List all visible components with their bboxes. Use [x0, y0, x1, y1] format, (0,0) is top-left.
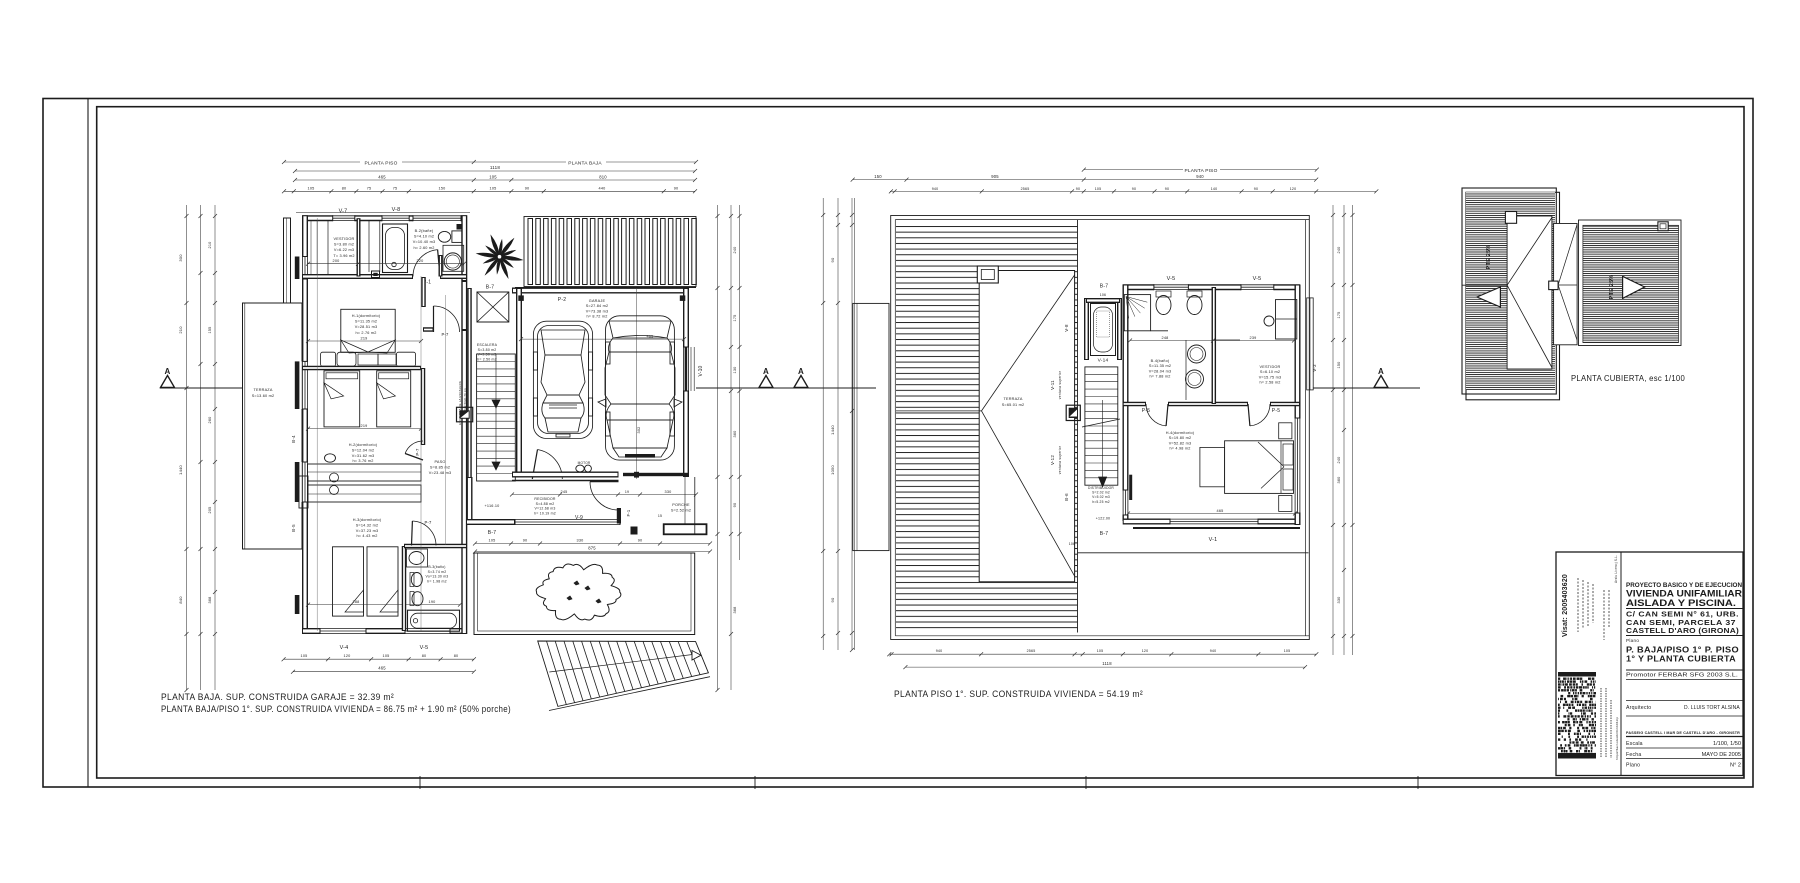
svg-text:V-3: V-3 [1312, 364, 1317, 372]
svg-text:140: 140 [1211, 187, 1218, 191]
svg-text:ventana superior: ventana superior [1058, 445, 1062, 474]
svg-text:V-12: V-12 [1050, 455, 1055, 465]
svg-text:VESTIDOR: VESTIDOR [333, 237, 354, 241]
svg-text:105: 105 [490, 187, 497, 191]
svg-text:810: 810 [599, 174, 607, 179]
svg-text:S=4.10 m2: S=4.10 m2 [414, 235, 434, 239]
svg-text:V=5.02 m3: V=5.02 m3 [1092, 495, 1110, 499]
svg-text:288: 288 [353, 600, 360, 604]
svg-text:VESTIDOR: VESTIDOR [1259, 365, 1280, 369]
svg-text:Promotor FERBAR SFG 2003 S.L.: Promotor FERBAR SFG 2003 S.L. [1626, 673, 1738, 679]
svg-text:Vo=13.30 m3: Vo=13.30 m3 [426, 575, 449, 579]
svg-text:F-1: F-1 [626, 509, 631, 516]
svg-text:h= 10.19 m2: h= 10.19 m2 [534, 511, 556, 515]
svg-text:h= 8.72 m2: h= 8.72 m2 [586, 315, 607, 319]
svg-text:465: 465 [378, 174, 386, 179]
svg-text:PLANTA BAJA: PLANTA BAJA [568, 161, 602, 167]
svg-text:V-5: V-5 [1253, 276, 1262, 282]
svg-text:B-4(baño): B-4(baño) [1151, 359, 1170, 363]
svg-text:105: 105 [1284, 649, 1291, 653]
svg-text:260: 260 [208, 417, 212, 424]
svg-text:90: 90 [1076, 187, 1080, 191]
svg-text:+122.00: +122.00 [1096, 517, 1111, 521]
svg-text:105: 105 [1095, 187, 1102, 191]
svg-text:h= 4.98 m2: h= 4.98 m2 [1169, 447, 1190, 451]
svg-text:T= 3.96 m2: T= 3.96 m2 [333, 254, 354, 258]
svg-text:B-7: B-7 [486, 285, 494, 291]
svg-text:105: 105 [489, 539, 496, 543]
svg-text:B-4: B-4 [291, 435, 296, 443]
svg-text:h=5.25 m2: h=5.25 m2 [1092, 500, 1109, 504]
svg-text:httpd//barcodes0n0tmb04ztp: httpd//barcodes0n0tmb04ztp [1615, 717, 1619, 760]
svg-text:205: 205 [208, 507, 212, 514]
svg-text:PASSEIG CASTELL I MAR DE CASTE: PASSEIG CASTELL I MAR DE CASTELL D'ARO -… [1626, 730, 1740, 735]
svg-text:Escala: Escala [1626, 741, 1643, 747]
svg-text:940: 940 [1196, 174, 1204, 179]
svg-text:V=9.50 m3: V=9.50 m3 [478, 353, 497, 357]
svg-text:H-1(dormitorio): H-1(dormitorio) [352, 314, 381, 318]
svg-text:V=15.75 m3: V=15.75 m3 [1259, 375, 1282, 379]
svg-text:210: 210 [178, 326, 183, 334]
svg-text:PLANTA PISO 1°. SUP. CONSTRUID: PLANTA PISO 1°. SUP. CONSTRUIDA VIVIENDA… [894, 689, 1143, 700]
svg-text:150: 150 [874, 174, 882, 179]
svg-text:h= 1.98 m2: h= 1.98 m2 [427, 579, 447, 583]
svg-text:S=2.02 m2: S=2.02 m2 [1092, 491, 1110, 495]
svg-text:210: 210 [208, 242, 212, 249]
svg-text:S=14.32 m2: S=14.32 m2 [356, 523, 379, 527]
svg-text:Plano: Plano [1626, 763, 1640, 769]
svg-text:368: 368 [208, 597, 212, 604]
svg-text:GARAJE: GARAJE [589, 299, 606, 303]
svg-text:V-8: V-8 [1064, 324, 1069, 332]
svg-text:106: 106 [1069, 542, 1075, 546]
svg-text:15: 15 [658, 514, 662, 518]
svg-text:B-6: B-6 [1064, 493, 1069, 501]
svg-text:105: 105 [1097, 649, 1104, 653]
svg-text:248: 248 [1162, 336, 1169, 340]
svg-text:80: 80 [454, 654, 459, 658]
svg-text:S=8.85 m2: S=8.85 m2 [430, 465, 450, 469]
svg-text:440: 440 [599, 187, 606, 191]
svg-text:V=12.68 m3: V=12.68 m3 [535, 507, 556, 511]
svg-text:MAYO DE 2005: MAYO DE 2005 [1702, 752, 1741, 758]
svg-text:PLANTA CUBIERTA, esc 1/100: PLANTA CUBIERTA, esc 1/100 [1571, 374, 1685, 383]
svg-text:S=19.80 m2: S=19.80 m2 [1169, 436, 1192, 440]
svg-text:120: 120 [344, 654, 351, 658]
svg-text:S=13.60 m2: S=13.60 m2 [252, 394, 275, 398]
svg-text:465: 465 [378, 666, 386, 671]
svg-text:80: 80 [342, 187, 347, 191]
svg-text:V=28.04 m3: V=28.04 m3 [1149, 369, 1172, 373]
svg-text:S=2.52 m2: S=2.52 m2 [671, 509, 691, 513]
svg-text:N° 2: N° 2 [1730, 763, 1741, 769]
svg-text:D. LLUIS TORT ALSINA: D. LLUIS TORT ALSINA [1684, 705, 1740, 711]
svg-text:PTE 25%: PTE 25% [1609, 275, 1615, 300]
svg-text:19: 19 [625, 490, 629, 494]
svg-text:P-7: P-7 [415, 448, 420, 456]
svg-text:h= 4.43 m2: h= 4.43 m2 [356, 534, 377, 538]
svg-text:PLANTA PISO: PLANTA PISO [364, 161, 397, 167]
svg-text:Visat: 2005403620: Visat: 2005403620 [1560, 574, 1569, 637]
svg-text:S=12.04 m2: S=12.04 m2 [352, 448, 375, 452]
svg-text:90: 90 [733, 503, 737, 508]
svg-text:S=3.74 m2: S=3.74 m2 [428, 570, 447, 574]
svg-text:130: 130 [733, 367, 737, 374]
svg-text:h= 7.88 m2: h= 7.88 m2 [1149, 375, 1170, 379]
svg-text:B-2(bañe): B-2(bañe) [415, 229, 434, 233]
svg-text:105: 105 [301, 654, 308, 658]
svg-text:840: 840 [178, 596, 183, 604]
svg-text:Arquitecto: Arquitecto [1626, 705, 1651, 711]
svg-text:S=27.84 m2: S=27.84 m2 [586, 304, 609, 308]
svg-text:300: 300 [178, 254, 183, 262]
svg-text:MOTOR: MOTOR [578, 461, 591, 465]
svg-text:S=4.88 m2: S=4.88 m2 [536, 502, 555, 506]
svg-text:90: 90 [1165, 187, 1169, 191]
svg-text:S=6.10 m2: S=6.10 m2 [1260, 370, 1280, 374]
svg-text:V=23.48 m3: V=23.48 m3 [429, 471, 452, 475]
svg-text:219: 219 [361, 337, 368, 341]
svg-text:90: 90 [525, 187, 530, 191]
svg-text:1440: 1440 [830, 425, 835, 435]
svg-text:Plano: Plano [1626, 638, 1639, 643]
svg-text:905: 905 [991, 174, 999, 179]
svg-text:1/100, 1/50: 1/100, 1/50 [1713, 741, 1741, 747]
svg-text:P-5: P-5 [1272, 408, 1280, 414]
svg-text:AISLADA Y PISCINA.: AISLADA Y PISCINA. [1626, 598, 1736, 608]
svg-text:V-7: V-7 [339, 209, 348, 215]
svg-text:h= 2.50 m2: h= 2.50 m2 [477, 357, 497, 361]
svg-text:V=37.23 m3: V=37.23 m3 [356, 529, 379, 533]
svg-text:h= 2.58 m2: h= 2.58 m2 [1259, 381, 1280, 385]
svg-text:302: 302 [637, 427, 641, 434]
svg-text:75: 75 [393, 187, 398, 191]
svg-text:PASO: PASO [434, 460, 445, 464]
svg-text:940: 940 [936, 649, 943, 653]
svg-text:Arxiu Licencj S.L.: Arxiu Licencj S.L. [1614, 555, 1618, 583]
svg-text:940: 940 [932, 187, 939, 191]
svg-text:75: 75 [367, 187, 372, 191]
svg-text:1118: 1118 [490, 165, 500, 170]
svg-text:90: 90 [674, 187, 679, 191]
svg-text:120: 120 [1142, 649, 1149, 653]
svg-text:105: 105 [308, 187, 315, 191]
svg-text:220: 220 [417, 259, 424, 263]
svg-text:CASTELL D'ARO (GIRONA): CASTELL D'ARO (GIRONA) [1626, 626, 1739, 635]
svg-text:ventana superior: ventana superior [1058, 370, 1062, 399]
svg-text:80: 80 [422, 654, 427, 658]
svg-text:B-7: B-7 [1100, 284, 1108, 290]
svg-text:H-3(dormitorio): H-3(dormitorio) [353, 518, 382, 522]
svg-text:V=52.82 m3: V=52.82 m3 [1169, 441, 1192, 445]
svg-text:150: 150 [439, 187, 446, 191]
svg-text:V-8: V-8 [392, 207, 401, 213]
svg-text:B-7: B-7 [1100, 531, 1108, 537]
svg-text:240: 240 [1337, 247, 1341, 254]
svg-text:175: 175 [733, 315, 737, 322]
svg-text:S=65.01 m2: S=65.01 m2 [1002, 403, 1025, 407]
svg-text:219: 219 [361, 424, 368, 428]
svg-text:200: 200 [333, 259, 340, 263]
svg-text:V=31.62 m3: V=31.62 m3 [352, 454, 375, 458]
svg-text:368: 368 [733, 607, 737, 614]
svg-text:1440: 1440 [178, 465, 183, 475]
svg-text:PTE 25%: PTE 25% [1486, 245, 1492, 270]
svg-text:245: 245 [561, 490, 568, 494]
svg-text:h= 2.76 m2: h= 2.76 m2 [355, 331, 376, 335]
svg-text:P-7: P-7 [441, 332, 449, 337]
svg-text:V-14: V-14 [1098, 358, 1109, 364]
svg-text:Fecha: Fecha [1626, 752, 1641, 758]
svg-text:2565: 2565 [1027, 649, 1036, 653]
svg-text:H-2(dormitorio): H-2(dormitorio) [349, 443, 378, 447]
svg-text:P-5: P-5 [1142, 408, 1150, 414]
svg-text:330: 330 [665, 490, 672, 494]
svg-text:PORCHE: PORCHE [672, 503, 690, 507]
svg-text:PLANTA BAJA/PISO 1°. SUP. CONS: PLANTA BAJA/PISO 1°. SUP. CONSTRUIDA VIV… [161, 704, 511, 715]
svg-text:S=3.80 m2: S=3.80 m2 [478, 348, 497, 352]
svg-text:V=73.38 m3: V=73.38 m3 [586, 309, 609, 313]
svg-text:P-2: P-2 [558, 297, 566, 303]
svg-text:V=10.40 m3: V=10.40 m3 [413, 240, 436, 244]
svg-text:105: 105 [383, 654, 390, 658]
svg-text:90: 90 [523, 539, 528, 543]
svg-text:TERRAZA: TERRAZA [1003, 397, 1022, 401]
svg-text:150: 150 [1337, 362, 1341, 369]
svg-text:175: 175 [1337, 312, 1341, 319]
svg-text:S=11.35 m2: S=11.35 m2 [1149, 364, 1171, 368]
svg-text:875: 875 [588, 546, 596, 551]
svg-text:1° Y PLANTA CUBIERTA: 1° Y PLANTA CUBIERTA [1626, 654, 1736, 664]
svg-text:330: 330 [1337, 597, 1341, 604]
svg-text:DISTRIBUIDOR: DISTRIBUIDOR [1088, 486, 1114, 490]
svg-text:106: 106 [1100, 293, 1106, 297]
svg-text:+116.10: +116.10 [485, 504, 500, 508]
svg-text:TERRAZA: TERRAZA [253, 388, 272, 392]
svg-text:240: 240 [733, 247, 737, 254]
svg-text:239: 239 [1250, 336, 1257, 340]
svg-text:240: 240 [1337, 457, 1341, 464]
svg-text:V-11: V-11 [1050, 380, 1055, 390]
svg-text:465: 465 [1217, 509, 1224, 513]
svg-text:1118: 1118 [1102, 661, 1112, 666]
svg-text:940: 940 [1210, 649, 1217, 653]
svg-text:V=6.22 m3: V=6.22 m3 [334, 248, 354, 252]
svg-text:90: 90 [830, 257, 835, 262]
svg-text:V-1: V-1 [1209, 537, 1218, 543]
svg-text:V-10: V-10 [698, 365, 704, 376]
svg-text:330: 330 [577, 539, 584, 543]
svg-text:90: 90 [638, 539, 643, 543]
svg-text:H-4(dormitorio): H-4(dormitorio) [1166, 431, 1195, 435]
svg-text:360: 360 [733, 431, 737, 438]
svg-text:1050: 1050 [830, 465, 835, 475]
svg-text:S=3.80 m2: S=3.80 m2 [334, 243, 354, 247]
svg-text:B-7: B-7 [488, 530, 496, 536]
svg-text:B-3(baño): B-3(baño) [428, 565, 445, 569]
svg-text:190: 190 [429, 600, 436, 604]
svg-text:105: 105 [489, 174, 497, 179]
svg-text:B-5: B-5 [291, 524, 296, 532]
svg-text:V-4: V-4 [340, 645, 349, 651]
svg-text:90: 90 [1132, 187, 1136, 191]
svg-text:V-9: V-9 [575, 515, 583, 521]
svg-text:V-5: V-5 [1167, 276, 1176, 282]
svg-text:S=11.35 m2: S=11.35 m2 [355, 320, 377, 324]
svg-text:V=28.51 m3: V=28.51 m3 [355, 325, 378, 329]
svg-text:155: 155 [208, 327, 212, 334]
svg-text:120: 120 [1290, 187, 1297, 191]
svg-text:RECIBIDOR: RECIBIDOR [534, 497, 556, 501]
svg-text:90: 90 [830, 597, 835, 602]
svg-text:90: 90 [1254, 187, 1258, 191]
svg-text:V-5: V-5 [420, 645, 429, 651]
svg-text:ESCALERA: ESCALERA [477, 343, 498, 347]
svg-text:2565: 2565 [1021, 187, 1030, 191]
svg-text:h= 2.60 m2: h= 2.60 m2 [413, 246, 434, 250]
svg-text:h= 3.76 m2: h= 3.76 m2 [352, 459, 373, 463]
svg-text:360: 360 [1337, 477, 1341, 484]
svg-text:PLANTA BAJA. SUP. CONSTRUIDA G: PLANTA BAJA. SUP. CONSTRUIDA GARAJE = 32… [161, 692, 394, 703]
svg-text:P-7: P-7 [424, 520, 432, 525]
svg-text:VIVIENDA UNIFAMILIAR: VIVIENDA UNIFAMILIAR [1626, 589, 1743, 599]
